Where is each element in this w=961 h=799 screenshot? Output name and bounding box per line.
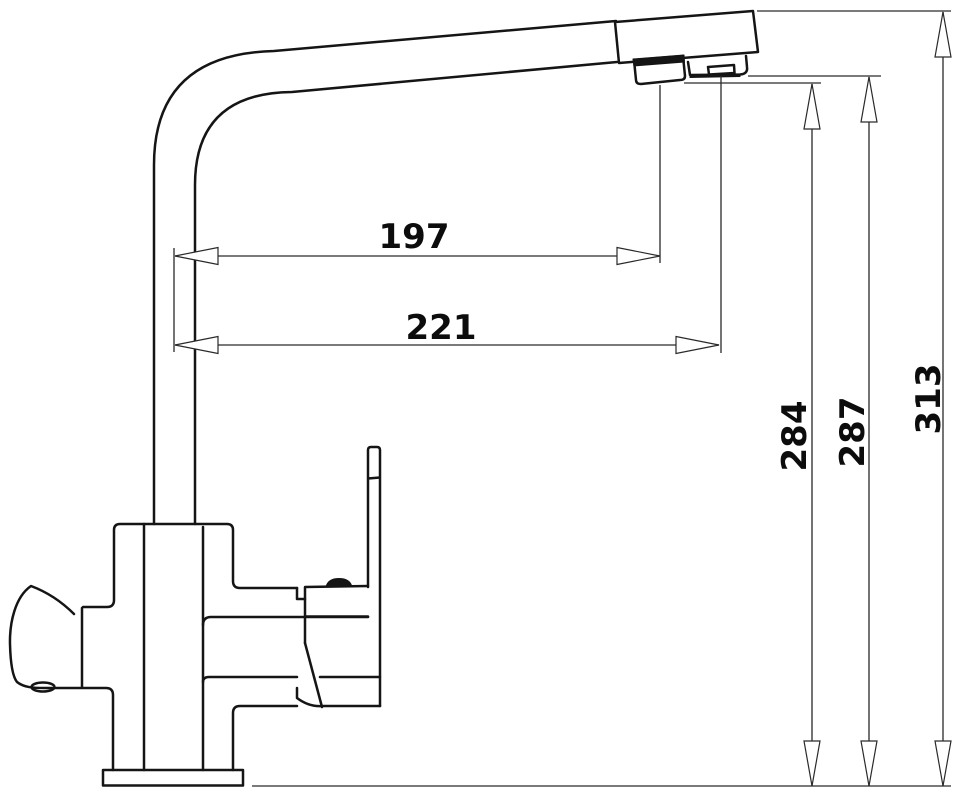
handle-housing-top-block bbox=[305, 586, 368, 643]
right-arm-lower-top bbox=[203, 677, 297, 682]
dimension-labels: 197 221 284 287 313 bbox=[379, 217, 949, 471]
arrow-313-up bbox=[935, 12, 951, 57]
housing-screw-dome bbox=[326, 579, 352, 588]
arrow-287-down bbox=[861, 741, 877, 786]
dimension-label-287: 287 bbox=[833, 397, 873, 468]
spout-arm-inner-profile bbox=[195, 62, 617, 524]
drawing-canvas: 197 221 284 287 313 bbox=[0, 0, 961, 799]
arrow-221-left bbox=[175, 337, 218, 354]
side-knob bbox=[10, 586, 82, 688]
arrow-197-right bbox=[617, 248, 660, 265]
base-plate bbox=[103, 770, 243, 786]
dimension-label-197: 197 bbox=[379, 217, 450, 257]
arrow-284-up bbox=[804, 84, 820, 129]
arrow-287-up bbox=[861, 77, 877, 122]
body-left-lower-edge bbox=[83, 688, 113, 770]
dimension-label-313: 313 bbox=[909, 364, 949, 435]
handle-housing-slant bbox=[305, 643, 322, 707]
right-arm-lower-bottom bbox=[233, 706, 297, 770]
dimension-label-284: 284 bbox=[775, 401, 815, 472]
arrow-284-down bbox=[804, 741, 820, 786]
spray-outlet-lip bbox=[690, 74, 740, 78]
spout-head bbox=[615, 11, 758, 63]
dimension-label-221: 221 bbox=[406, 308, 477, 348]
arrow-221-right bbox=[676, 337, 719, 354]
aerator-band bbox=[633, 55, 685, 66]
spout-arm-outer-profile bbox=[154, 21, 616, 524]
arrow-313-down bbox=[935, 741, 951, 786]
handle-housing-bottom-block bbox=[320, 677, 380, 706]
faucet-outline bbox=[10, 11, 758, 786]
handle-lever bbox=[368, 447, 380, 706]
body-top-cap bbox=[83, 524, 297, 607]
faucet-dimension-drawing: 197 221 284 287 313 bbox=[0, 0, 961, 799]
arrow-197-left bbox=[175, 248, 218, 265]
right-arm-upper-bottom bbox=[203, 617, 368, 625]
spray-outlet-inner bbox=[708, 65, 735, 75]
